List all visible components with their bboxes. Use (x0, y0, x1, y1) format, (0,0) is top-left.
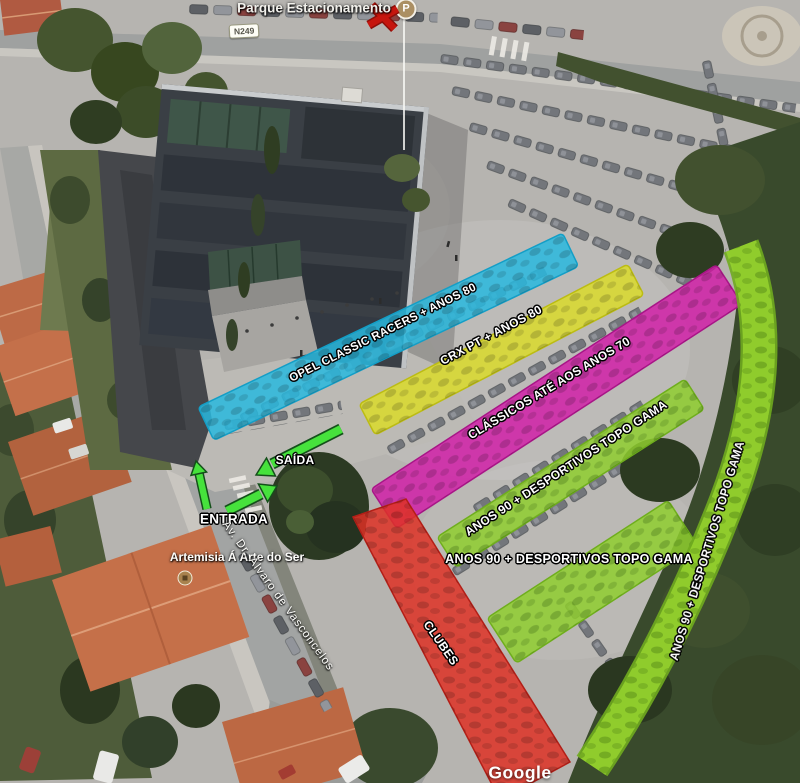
parking-marker-stem (403, 18, 405, 150)
zone-label-anos90-row-2: ANOS 90 + DESPORTIVOS TOPO GAMA (445, 552, 693, 566)
poi-label[interactable]: Artemisia Á Arte do Ser (170, 550, 304, 564)
satellite-map[interactable]: P Parque Estacionamento N249 OPEL CLASSI… (0, 0, 800, 783)
exit-label: SAÍDA (276, 453, 315, 467)
map-imagery (0, 0, 800, 783)
poi-icon-glyph (183, 576, 188, 581)
parking-area-label: Parque Estacionamento (237, 1, 391, 16)
google-logo[interactable]: Google (488, 763, 551, 783)
entrance-tree (269, 452, 369, 560)
poi-icon[interactable] (178, 571, 193, 586)
road-badge-n249: N249 (229, 23, 260, 39)
